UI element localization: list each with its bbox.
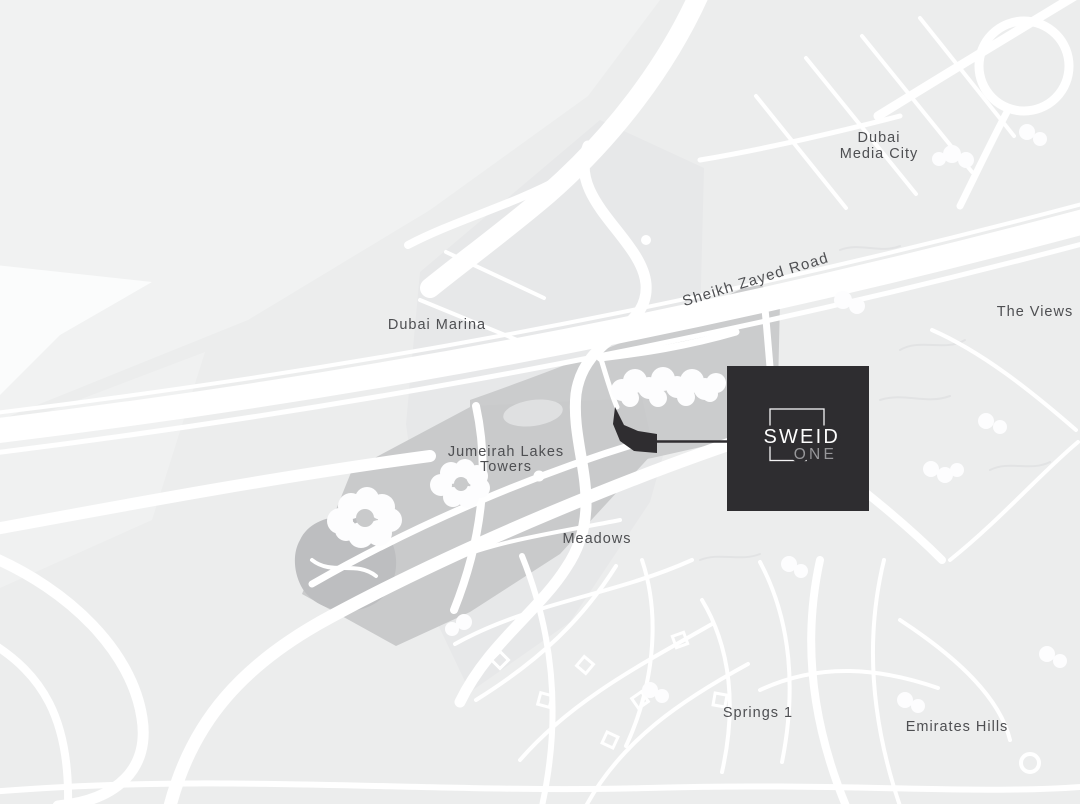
location-map: Dubai Media City Sheikh Zayed Road Dubai… [0,0,1080,804]
label-jumeirah-lakes-towers-line1: Jumeirah Lakes [448,444,564,460]
label-dubai-media-city-line2: Media City [840,146,919,162]
map-canvas: Dubai Media City Sheikh Zayed Road Dubai… [0,0,1080,804]
station-node [534,471,545,482]
label-dubai-media-city-line1: Dubai [858,130,901,146]
label-the-views: The Views [997,304,1073,320]
logo-card: SWEID ONE [727,366,869,511]
label-jumeirah-lakes-towers-line2: Towers [480,459,532,475]
label-dubai-marina: Dubai Marina [388,317,486,333]
label-emirates-hills: Emirates Hills [906,719,1009,735]
label-springs-1: Springs 1 [723,705,793,721]
logo-text-one: ONE [794,446,837,463]
logo-text-sweid: SWEID [763,426,840,448]
label-meadows: Meadows [562,531,631,547]
